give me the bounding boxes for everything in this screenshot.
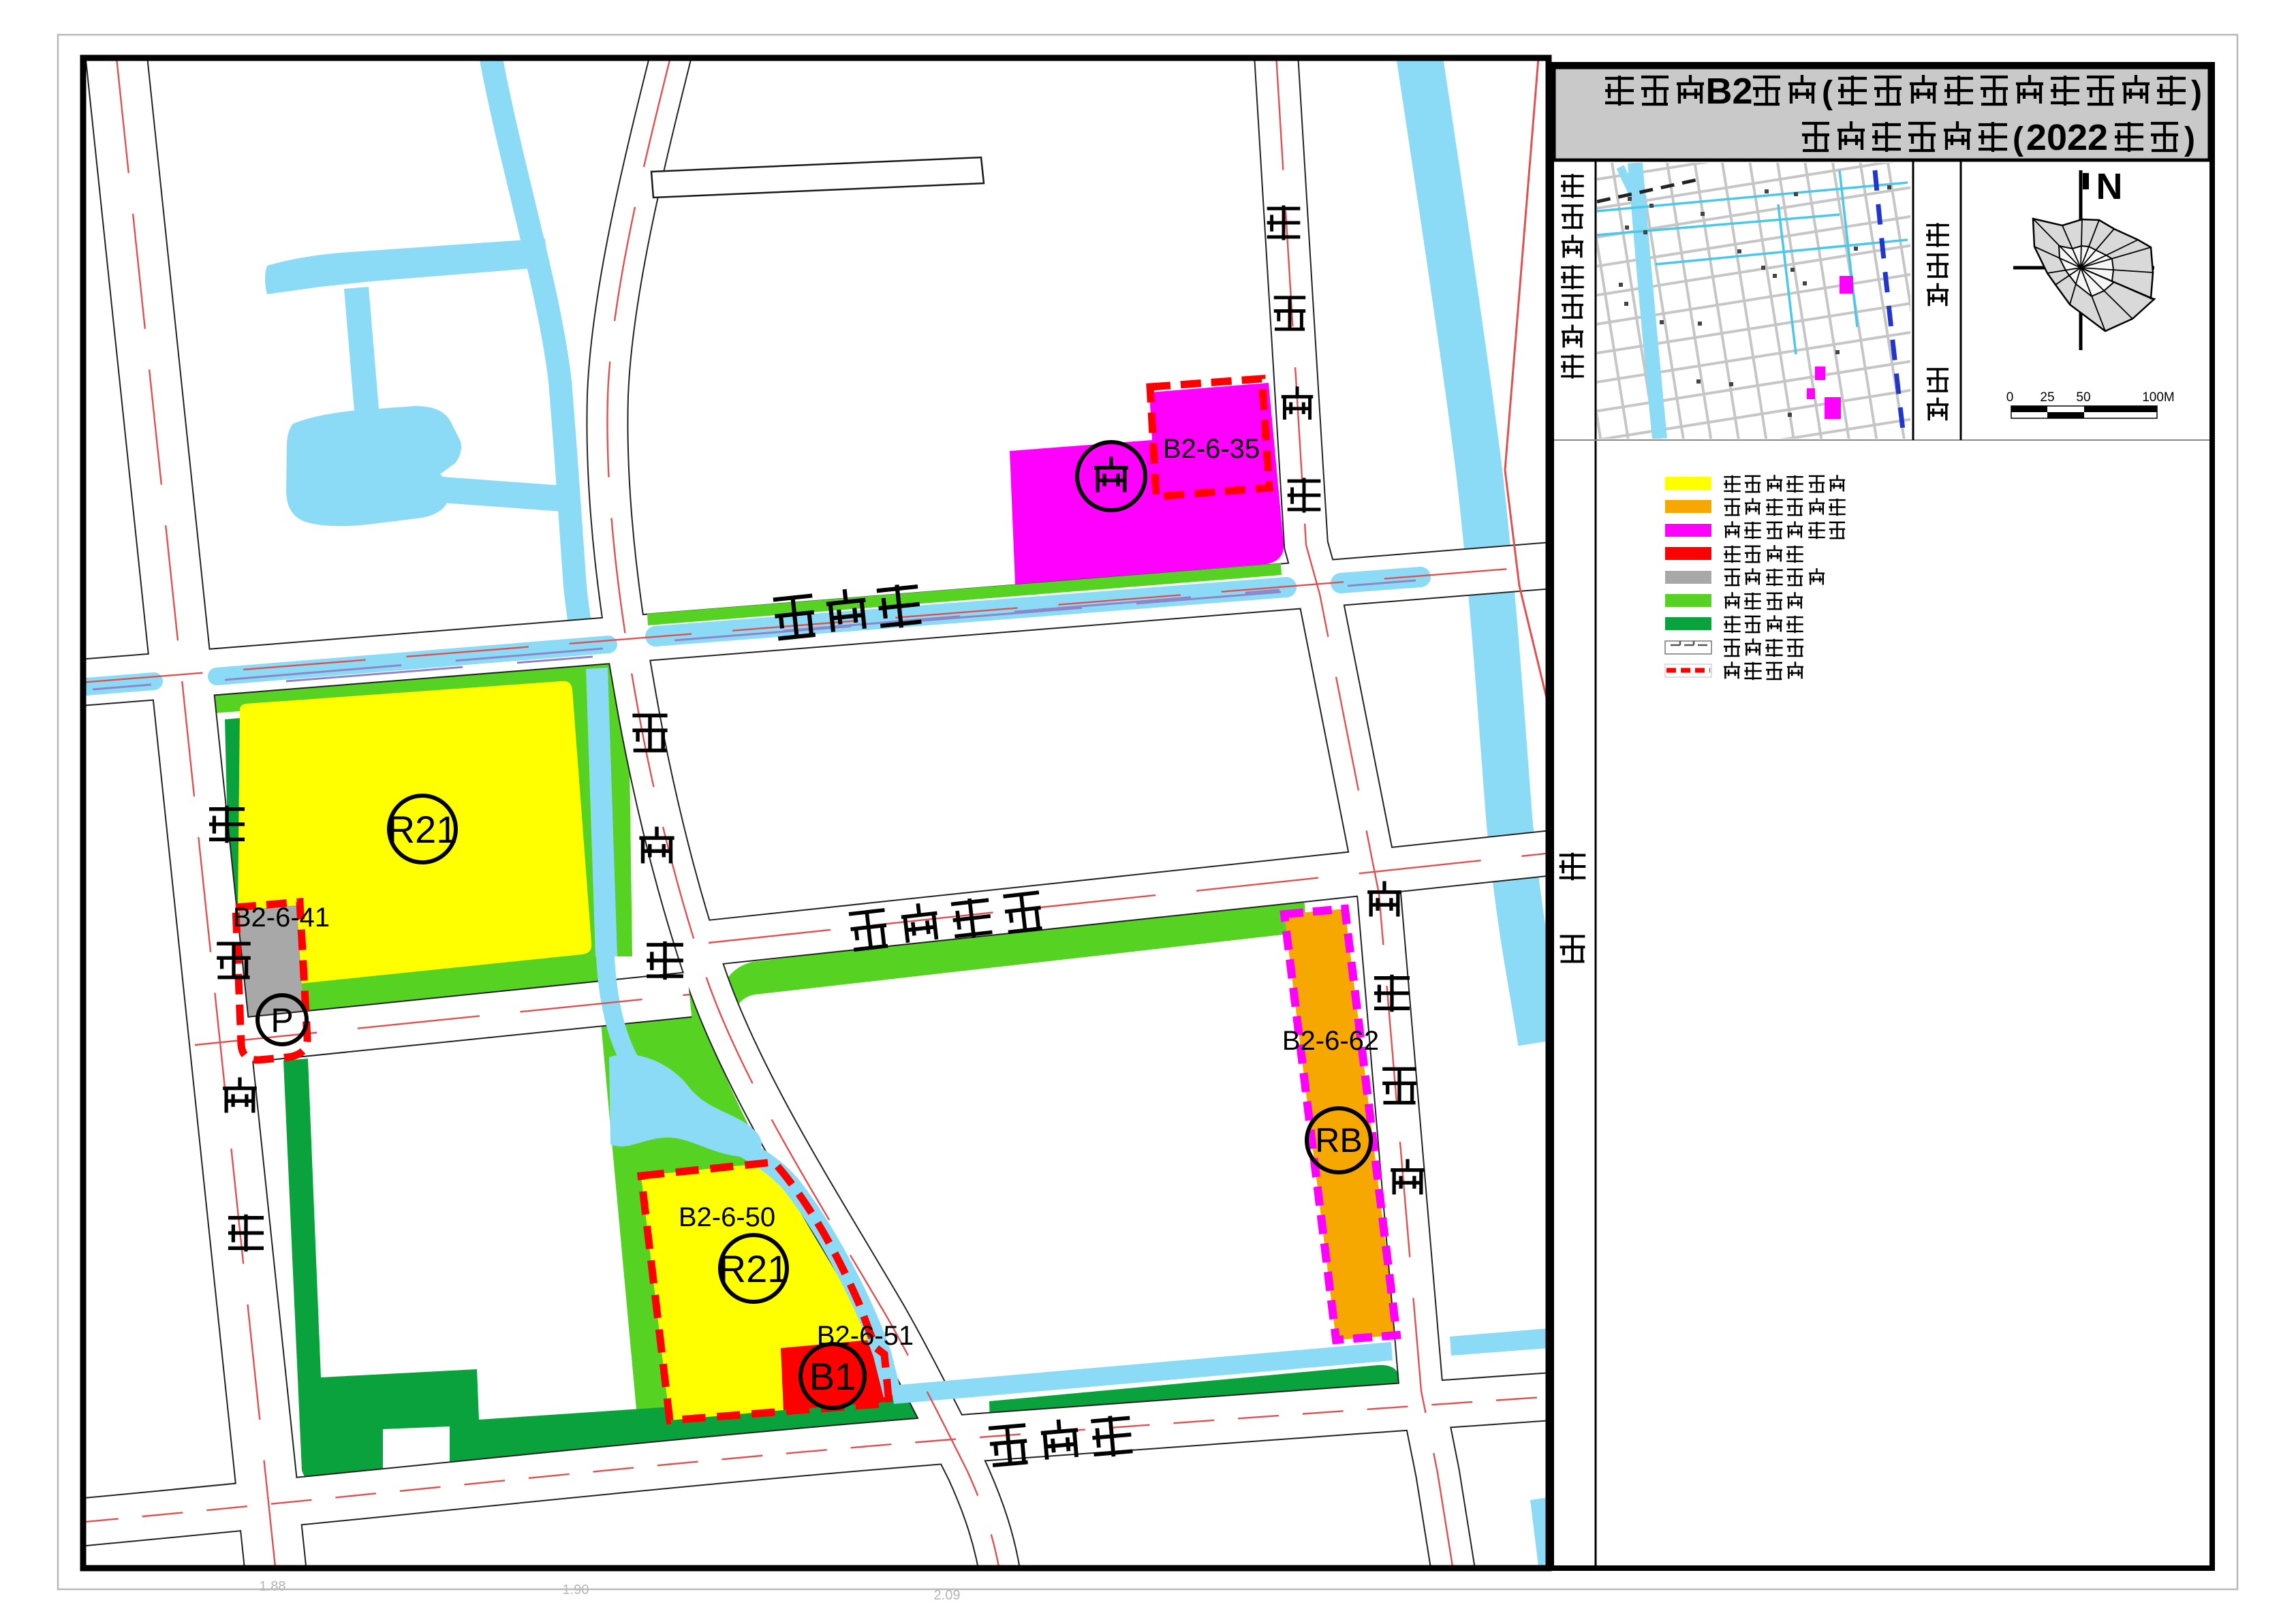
svg-text:RB: RB [1315,1121,1362,1159]
svg-text:(: ( [2013,121,2023,157]
svg-text:N: N [2096,166,2123,207]
svg-text:0: 0 [2006,390,2014,405]
svg-text:): ) [2184,121,2195,157]
svg-text:2.09: 2.09 [934,1588,961,1603]
svg-text:B2-6-35: B2-6-35 [1163,434,1260,464]
svg-text:B2-6-50: B2-6-50 [679,1202,775,1232]
svg-text:1.88: 1.88 [260,1579,286,1594]
svg-text:B2-6-41: B2-6-41 [233,903,330,933]
svg-text:B2-6-51: B2-6-51 [817,1321,914,1351]
svg-text:B2: B2 [1705,71,1752,112]
svg-text:(: ( [1822,75,1833,111]
svg-text:R21: R21 [388,808,458,851]
svg-text:B2-6-62: B2-6-62 [1282,1026,1379,1056]
svg-text:B1: B1 [809,1355,856,1398]
svg-text:50: 50 [2076,390,2090,405]
svg-text:1.90: 1.90 [563,1582,589,1597]
svg-text:R21: R21 [719,1247,789,1290]
svg-text:2022: 2022 [2026,117,2108,158]
svg-text:25: 25 [2040,390,2054,405]
svg-text:P: P [270,1001,293,1040]
svg-text:100M: 100M [2142,390,2175,405]
svg-text:): ) [2191,75,2202,111]
